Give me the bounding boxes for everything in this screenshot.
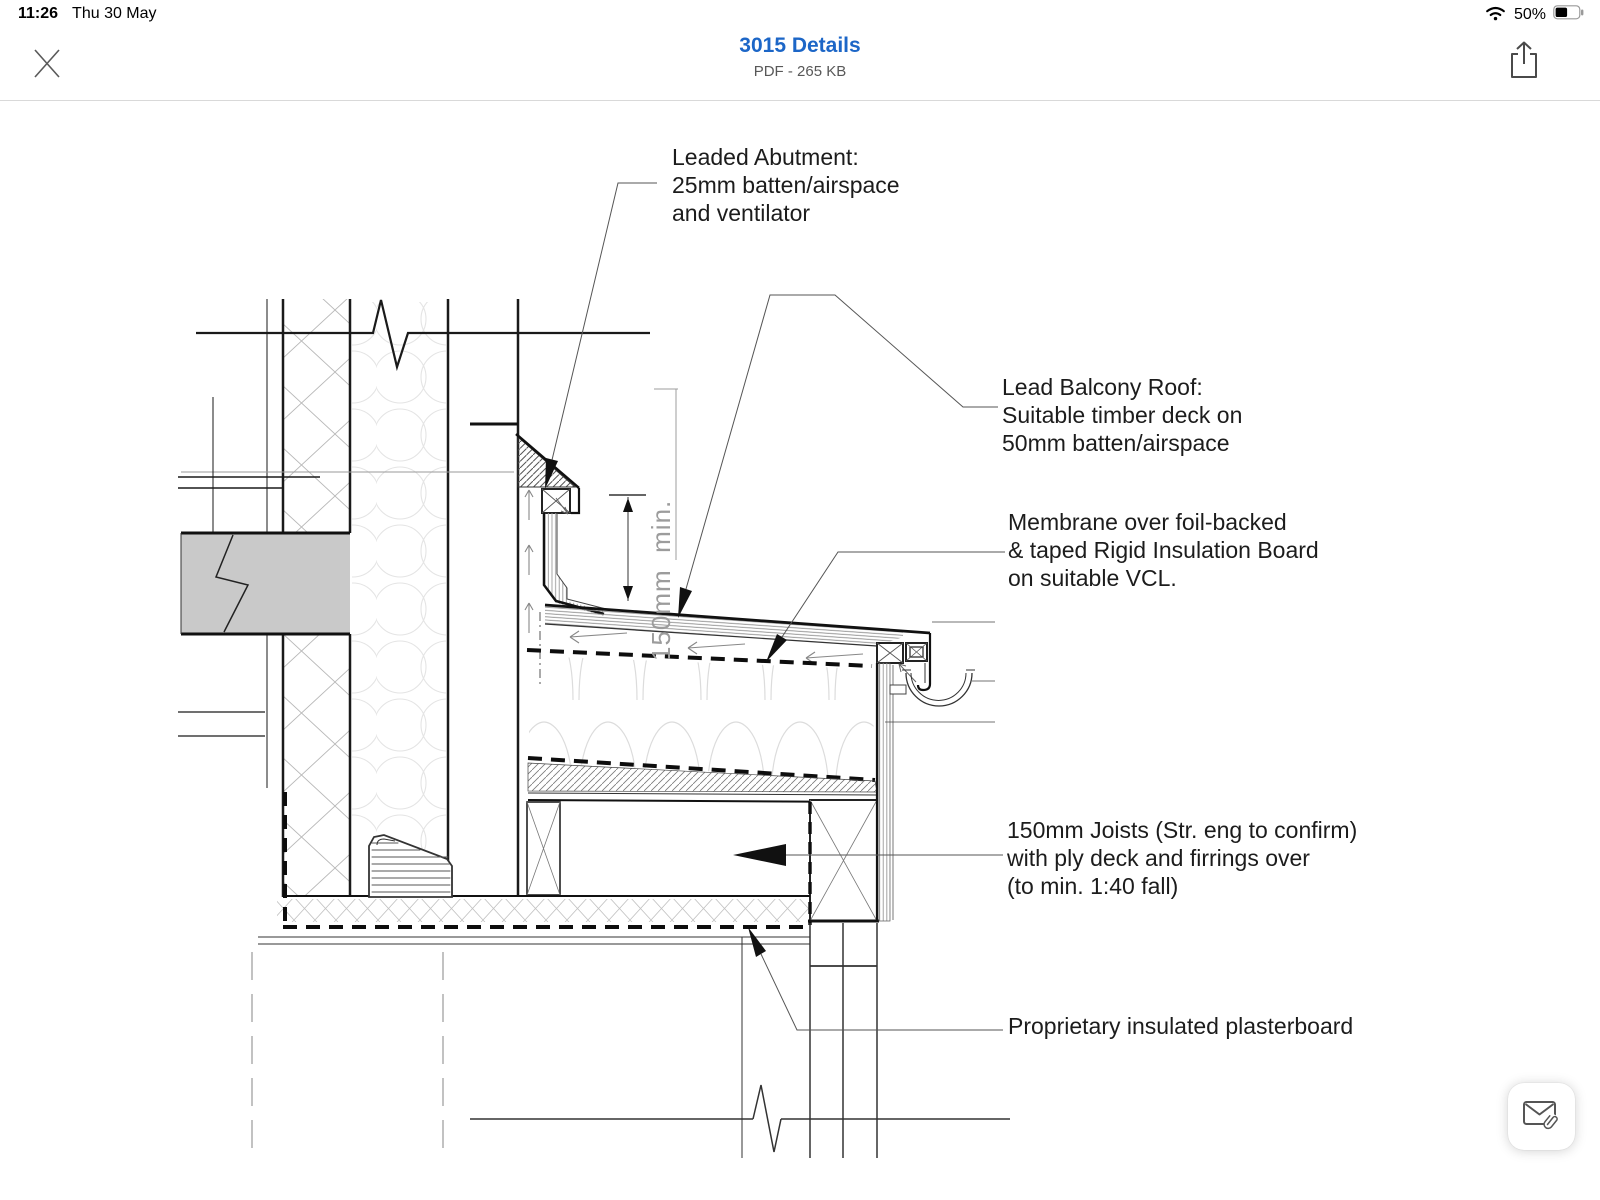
annotation-membrane: Membrane over foil-backed & taped Rigid … xyxy=(1008,508,1319,592)
balcony-roof-deck xyxy=(527,605,930,802)
dimension-label: 150mm min. xyxy=(646,500,677,661)
annotation-line: with ply deck and firrings over xyxy=(1007,844,1357,872)
annotation-line: Lead Balcony Roof: xyxy=(1002,373,1242,401)
annotation-joists: 150mm Joists (Str. eng to confirm) with … xyxy=(1007,816,1357,900)
annotation-line: & taped Rigid Insulation Board xyxy=(1008,536,1319,564)
annotation-line: 25mm batten/airspace xyxy=(672,171,900,199)
annotation-line: 150mm Joists (Str. eng to confirm) xyxy=(1007,816,1357,844)
pdf-page[interactable]: Leaded Abutment: 25mm batten/airspace an… xyxy=(0,101,1600,1200)
annotation-line: Leaded Abutment: xyxy=(672,143,900,171)
annotation-line: 50mm batten/airspace xyxy=(1002,429,1242,457)
annotation-line: Suitable timber deck on xyxy=(1002,401,1242,429)
leaded-abutment-detail xyxy=(470,424,606,688)
annotation-line: on suitable VCL. xyxy=(1008,564,1319,592)
annotation-line: (to min. 1:40 fall) xyxy=(1007,872,1357,900)
annotation-line: and ventilator xyxy=(672,199,900,227)
lower-wall xyxy=(252,923,1010,1158)
annotation-lead-balcony-roof: Lead Balcony Roof: Suitable timber deck … xyxy=(1002,373,1242,457)
annotation-plasterboard: Proprietary insulated plasterboard xyxy=(1008,1012,1353,1040)
fascia-and-gutter xyxy=(877,622,995,921)
annotation-line: Proprietary insulated plasterboard xyxy=(1008,1012,1353,1040)
email-document-button[interactable] xyxy=(1508,1083,1575,1150)
annotation-leaded-abutment: Leaded Abutment: 25mm batten/airspace an… xyxy=(672,143,900,227)
floor-beam xyxy=(181,533,350,634)
annotation-line: Membrane over foil-backed xyxy=(1008,508,1319,536)
email-attachment-icon xyxy=(1522,1098,1562,1135)
